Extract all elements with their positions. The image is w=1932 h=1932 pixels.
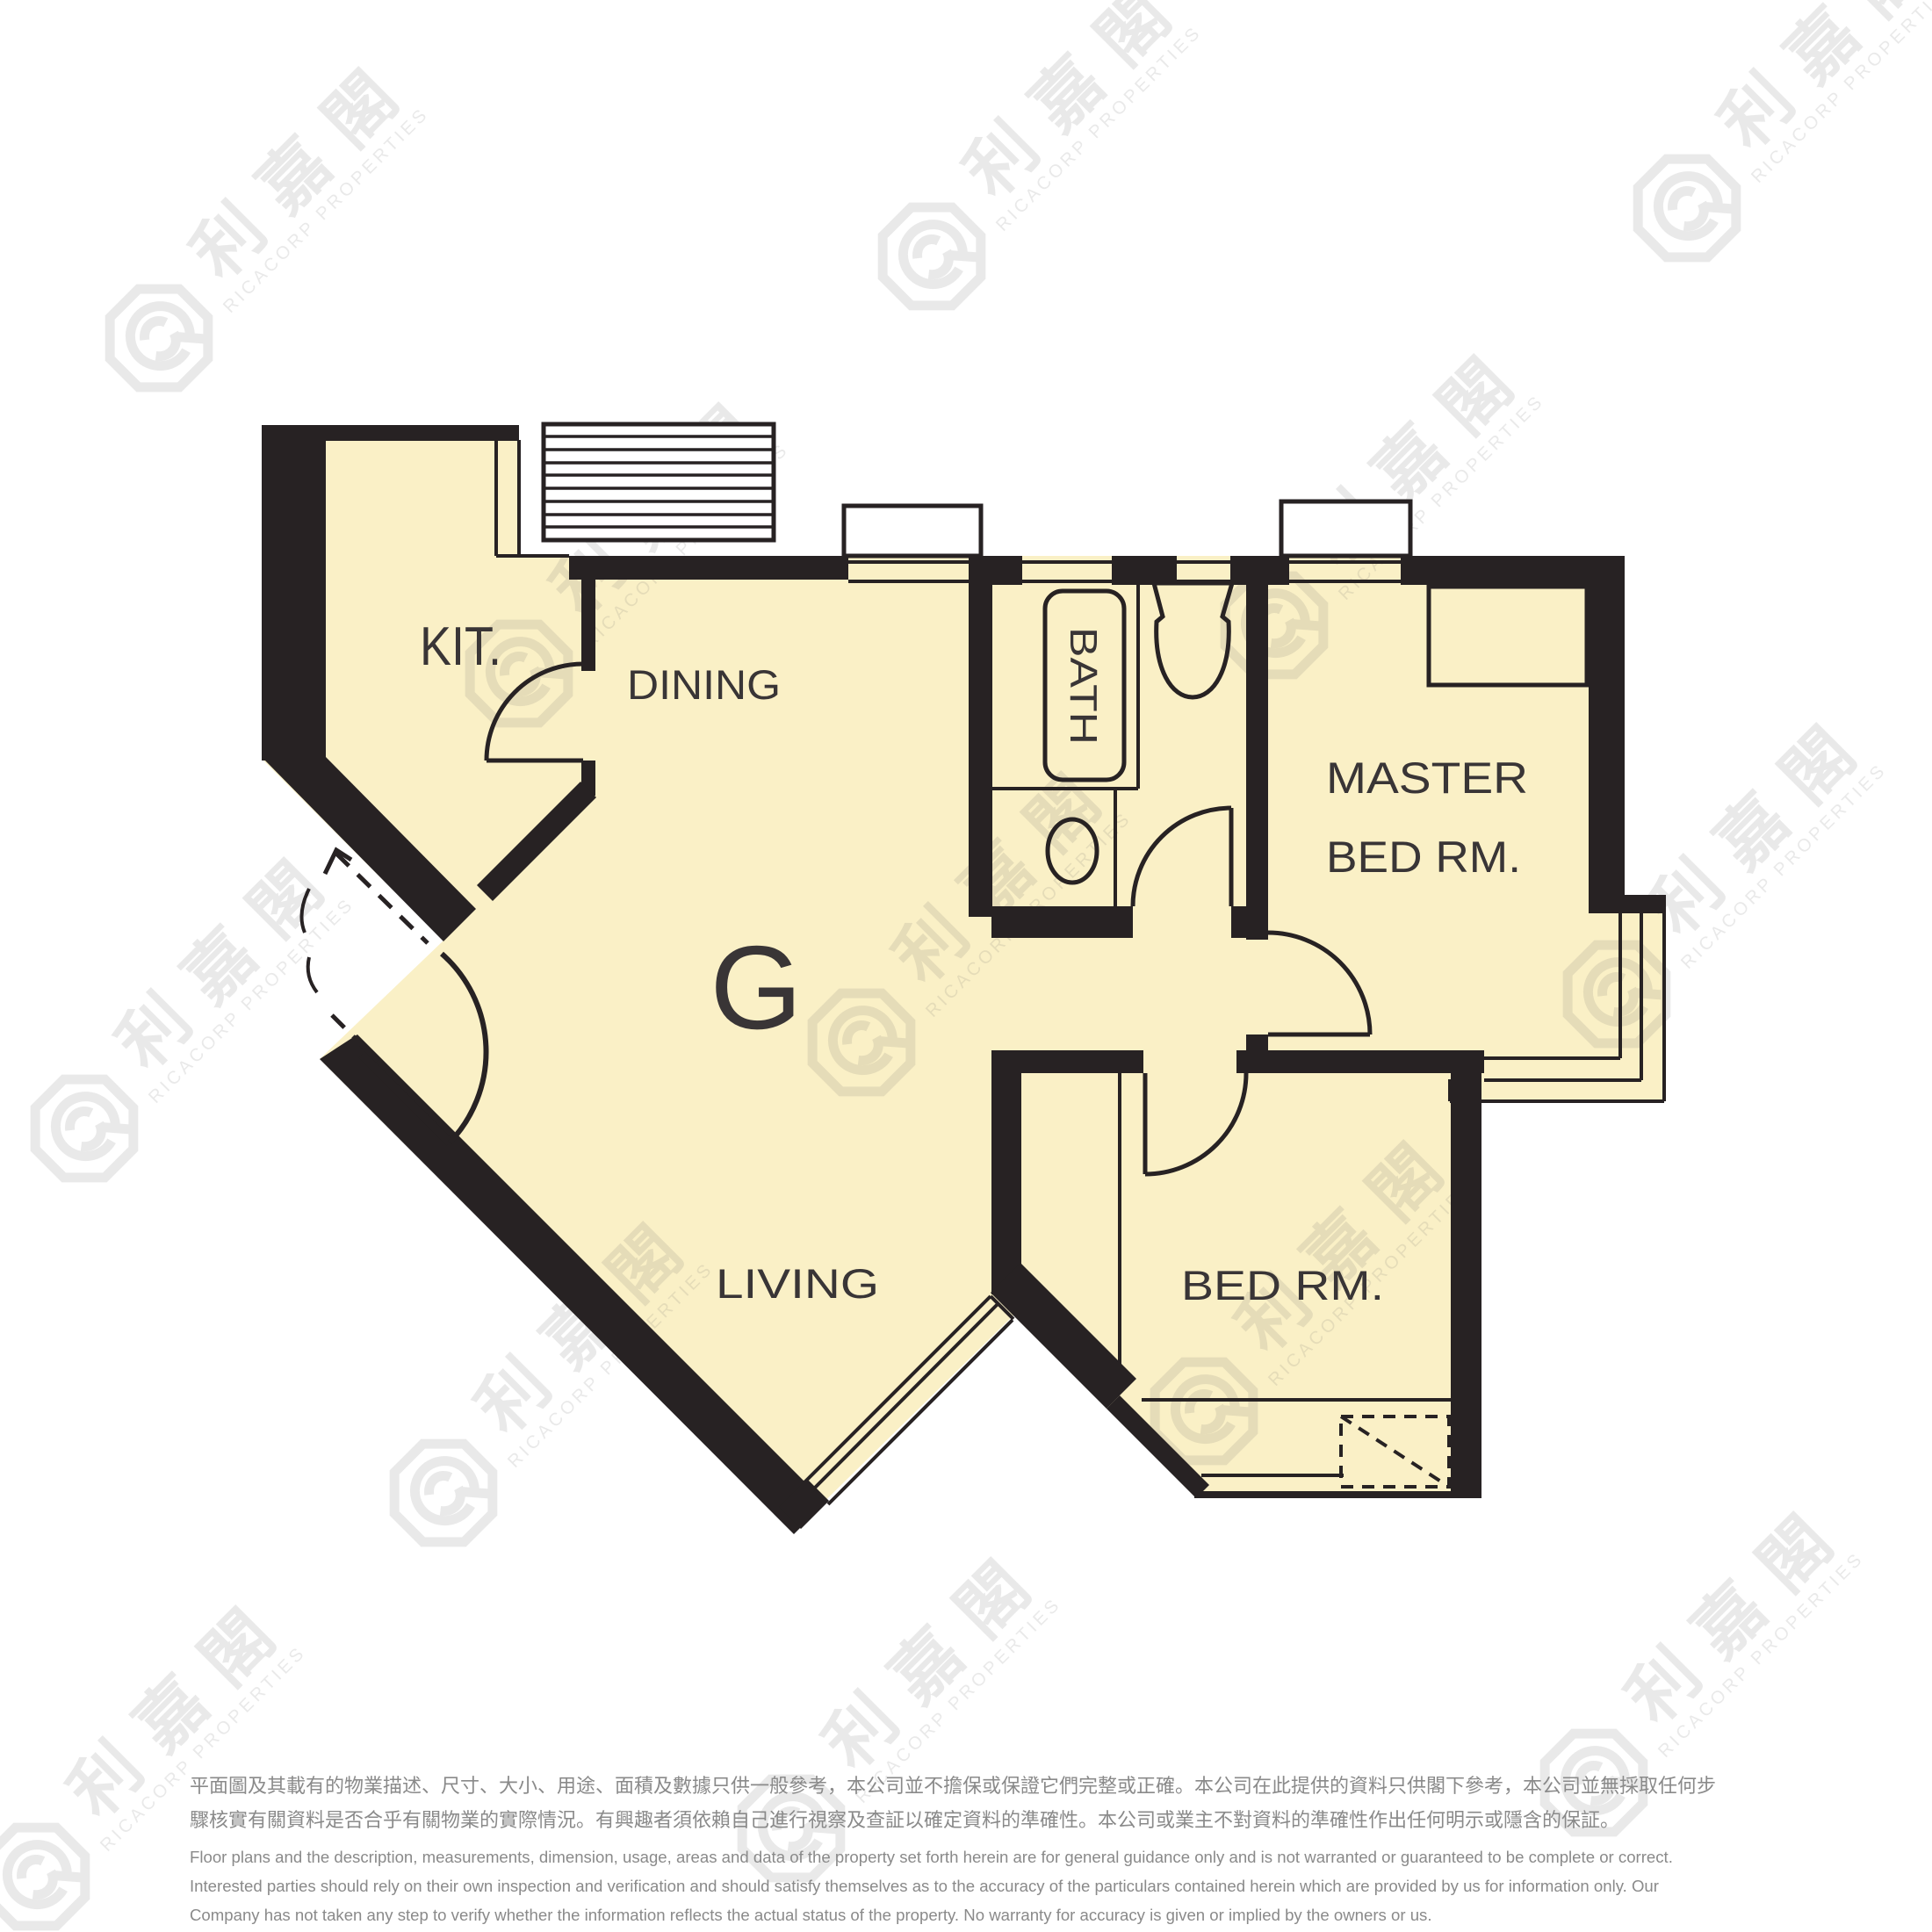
svg-text:BED RM.: BED RM. <box>1181 1262 1384 1308</box>
svg-text:驟核實有關資料是否合乎有關物業的實際情況。有興趣者須依賴自己: 驟核實有關資料是否合乎有關物業的實際情況。有興趣者須依賴自己進行視察及查証以確定… <box>190 1809 1619 1831</box>
svg-text:Company has not taken any step: Company has not taken any step to verify… <box>190 1906 1432 1924</box>
svg-text:Interested parties should rely: Interested parties should rely on their … <box>190 1877 1659 1895</box>
svg-text:LIVING: LIVING <box>716 1260 879 1307</box>
svg-text:MASTER: MASTER <box>1326 753 1528 803</box>
svg-text:G: G <box>710 921 802 1054</box>
svg-text:BATH: BATH <box>1062 627 1105 745</box>
svg-text:KIT.: KIT. <box>420 616 501 677</box>
svg-text:Floor plans and the descriptio: Floor plans and the description, measure… <box>190 1848 1673 1866</box>
svg-text:平面圖及其載有的物業描述、尺寸、大小、用途、面積及數據只供一: 平面圖及其載有的物業描述、尺寸、大小、用途、面積及數據只供一般參考，本公司並不擔… <box>190 1775 1716 1797</box>
svg-text:DINING: DINING <box>627 661 781 708</box>
svg-text:BED RM.: BED RM. <box>1326 833 1521 882</box>
